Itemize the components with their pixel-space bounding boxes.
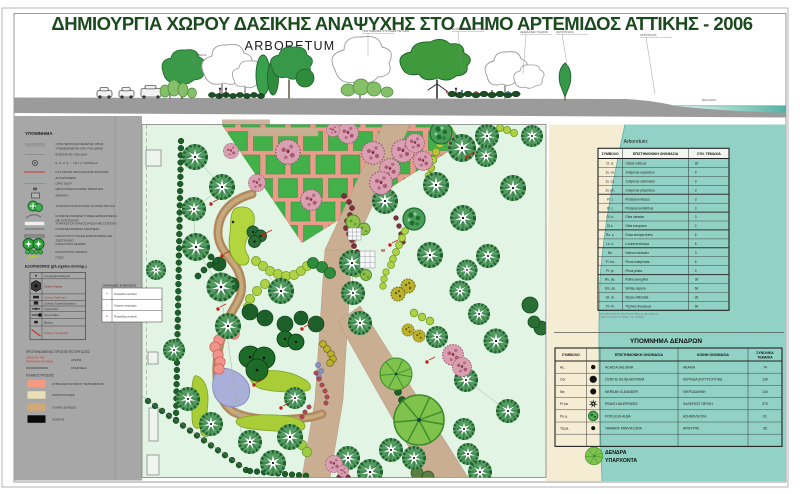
svg-text:Pi. ha.: Pi. ha. <box>606 260 615 264</box>
svg-text:ΣΥΝ. ΤΕΜΑΧΙΑ: ΣΥΝ. ΤΕΜΑΧΙΑ <box>697 152 721 156</box>
svg-text:NERIUM OLEANDER: NERIUM OLEANDER <box>605 390 639 394</box>
svg-text:ΓΚΑΖΟΝ: ΓΚΑΖΟΝ <box>52 417 64 421</box>
svg-text:Lo. e.: Lo. e. <box>606 242 614 246</box>
svg-text:Olea oleaster: Olea oleaster <box>625 215 645 219</box>
svg-text:Βρύση: Βρύση <box>44 320 53 324</box>
svg-text:Χάρτης περιοχής: Χάρτης περιοχής <box>114 303 137 307</box>
svg-text:Ξύλινη περίφραξη: Ξύλινη περίφραξη <box>44 331 68 335</box>
svg-text:375: 375 <box>762 402 768 406</box>
svg-text:30: 30 <box>695 296 699 300</box>
svg-text:ΘΑΜΝΟΙ ΚΑΙ ΚΑΛΛΩΠΙΣΤΙΚΑ: ΘΑΜΝΟΙ ΚΑΙ ΚΑΛΛΩΠΙΣΤΙΚΑ <box>452 27 490 31</box>
svg-text:ΥΠΟΜΝΗΜΑ: ΥΠΟΜΝΗΜΑ <box>25 131 53 136</box>
svg-text:2: 2 <box>695 224 697 228</box>
svg-text:ΣΧΙΣΤΟΠΛΑΚΕΣ: ΣΧΙΣΤΟΠΛΑΚΕΣ <box>52 393 75 397</box>
svg-text:Ru. pe.: Ru. pe. <box>605 278 615 282</box>
svg-text:ΘΑΛΑΣΣΑ: ΘΑΛΑΣΣΑ <box>702 98 716 102</box>
svg-text:ΛΕΥΚΟΨΗΛΑ: ΛΕΥΚΟΨΗΛΑ <box>556 30 574 34</box>
svg-text:Ta.pa.: Ta.pa. <box>560 427 569 431</box>
svg-text:ΦΡΕΑΤΙΑ: ΦΡΕΑΤΙΑ <box>56 194 69 198</box>
svg-text:ΚΡΑΣΠΕΔΑ: ΚΡΑΣΠΕΔΑ <box>71 366 87 370</box>
svg-text:Για τα είδη Juniperus, Olea, P: Για τα είδη Juniperus, Olea, Pistacia, R… <box>599 313 659 316</box>
svg-text:ΣΥΝΟΛΙΚΑ: ΣΥΝΟΛΙΚΑ <box>756 351 774 355</box>
svg-text:61: 61 <box>763 414 767 418</box>
svg-text:6: 6 <box>695 260 697 264</box>
svg-text:ΚΑΤ ΑΡΧΗΝ ΟΡΙΟ ΔΑΣΙΚΗΣ ΕΡΓΑΣΙΑ: ΚΑΤ ΑΡΧΗΝ ΟΡΙΟ ΔΑΣΙΚΗΣ ΕΡΓΑΣΙΑΣ <box>56 170 109 174</box>
svg-text:ΣΥΜΒΟΛΟ: ΣΥΜΒΟΛΟ <box>602 152 619 156</box>
svg-text:Πινακίδα εισόδου: Πινακίδα εισόδου <box>114 292 137 296</box>
svg-text:Thymus theacious: Thymus theacious <box>625 305 651 309</box>
svg-text:Rosa sempervirens: Rosa sempervirens <box>625 233 653 237</box>
svg-text:140: 140 <box>762 390 768 394</box>
svg-text:Τραμπάλα: Τραμπάλα <box>44 307 58 311</box>
svg-text:Ci. cr.: Ci. cr. <box>606 162 614 166</box>
svg-text:Pistacia terebinthus: Pistacia terebinthus <box>625 206 653 210</box>
svg-text:Juniperus communis: Juniperus communis <box>625 180 655 184</box>
svg-text:ΥΠΕΔΕΙΧΘΗΣΑΝ ΑΠΟ ΤΟΝ ΔΗΜΟ: ΥΠΕΔΕΙΧΘΗΣΑΝ ΑΠΟ ΤΟΝ ΔΗΜΟ <box>56 146 104 150</box>
svg-text:Th. th.: Th. th. <box>606 305 615 309</box>
svg-text:ΑΚΡΟΓΙΑΛΙΑ: ΑΚΡΟΓΙΑΛΙΑ <box>640 33 657 37</box>
svg-text:ΥΦΙΣΤΑΜΕΝΕΣ ΣΥΣΤΑΔΕΣ ΠΕΥΚΩΝ: ΥΦΙΣΤΑΜΕΝΕΣ ΣΥΣΤΑΔΕΣ ΠΕΥΚΩΝ <box>362 29 409 33</box>
svg-text:3: 3 <box>695 188 697 192</box>
svg-text:ΠΛΑΚΟΣΤΡΩΣΕΙΣ: ΠΛΑΚΟΣΤΡΩΣΕΙΣ <box>26 374 54 378</box>
svg-text:6: 6 <box>695 233 697 237</box>
svg-text:Juniperus oxycedrus: Juniperus oxycedrus <box>625 171 655 175</box>
svg-text:ο αριθ. των φυτών ανά τεμάχιο: ο αριθ. των φυτών ανά τεμάχιο - κατ' εκτ… <box>599 316 644 319</box>
svg-text:136: 136 <box>762 378 768 382</box>
svg-text:ΚΟΙΝΗ ΟΝΟΜΑΣΙΑ: ΚΟΙΝΗ ΟΝΟΜΑΣΙΑ <box>697 353 729 357</box>
svg-text:3: 3 <box>695 206 697 210</box>
svg-text:60: 60 <box>695 305 699 309</box>
svg-text:ΕΞΟΠΛΙΣΜΟΣ (βλ.σχέδιο Λεπτομ.): ΕΞΟΠΛΙΣΜΟΣ (βλ.σχέδιο Λεπτομ.) <box>25 265 87 269</box>
svg-text:Ac.: Ac. <box>560 366 565 370</box>
svg-text:ΧΑΛΕΠΙΟΣ ΠΕΥΚΗ: ΧΑΛΕΠΙΟΣ ΠΕΥΚΗ <box>683 402 713 406</box>
svg-text:··: ·· <box>106 302 109 307</box>
svg-text:ΥΠΑΡΧΟΥΣΑ ΒΛΑΣΤΗΣΗ (ΚΥΡΙΩΣ ΠΕΥ: ΥΠΑΡΧΟΥΣΑ ΒΛΑΣΤΗΣΗ (ΚΥΡΙΩΣ ΠΕΥΚΑ) <box>56 204 116 208</box>
svg-text:1,5 ΠΕΖΟΔ.: 1,5 ΠΕΖΟΔ. <box>193 53 207 57</box>
svg-text:ΠΙΚΡΟΔΑΦΝΗ: ΠΙΚΡΟΔΑΦΝΗ <box>683 390 706 394</box>
svg-text:TAMARIX PARVIFLORA: TAMARIX PARVIFLORA <box>605 427 643 431</box>
svg-text:ΚΑΙΝΟΥΡΓΙΑ ΔΕΝΔΡΑ: ΚΑΙΝΟΥΡΓΙΑ ΔΕΝΔΡΑ <box>56 242 86 246</box>
svg-text:Styrax officinalis: Styrax officinalis <box>625 296 648 300</box>
svg-text:ΚΥΒΟΛΙΘΟΙ ΦΥΣΙΚΟΥ ΠΕΤΡΩΜΑΤΟΣ: ΚΥΒΟΛΙΘΟΙ ΦΥΣΙΚΟΥ ΠΕΤΡΩΜΑΤΟΣ <box>52 382 104 386</box>
svg-text:ΠΕΡΓΚΟΛΑ ΑΤΟΜΩΝ: ΠΕΡΓΚΟΛΑ ΑΤΟΜΩΝ <box>26 360 53 364</box>
svg-text:ΥΠΑΡΧΟΥΣΑ ΠΛΑΚΟΣΤΡΩΣΗ ΜΕ ΣΧΙΣΤ: ΥΠΑΡΧΟΥΣΑ ΠΛΑΚΟΣΤΡΩΣΗ ΜΕ ΣΧΙΣΤ/ΘΟ <box>56 222 118 226</box>
svg-text:32: 32 <box>695 162 699 166</box>
svg-text:Ol.e.: Ol.e. <box>607 224 614 228</box>
svg-text:Ne.: Ne. <box>608 251 613 255</box>
svg-text:ΠΡΟΤΕΙΝΟΜΕΝΕΣ ΠΡΟΣΘΕΤΕΣ ΕΡΓΑΣΙ: ΠΡΟΤΕΙΝΟΜΕΝΕΣ ΠΡΟΣΘΕΤΕΣ ΕΡΓΑΣΙΕΣ <box>26 350 90 354</box>
svg-text:Rubia peregrina: Rubia peregrina <box>625 278 648 282</box>
svg-text:Cer.: Cer. <box>560 378 566 382</box>
svg-text:Nerium oleander: Nerium oleander <box>625 251 650 255</box>
svg-text:ΞΥΛΙΝΟ ΔΑΠΕΔΟ: ΞΥΛΙΝΟ ΔΑΠΕΔΟ <box>52 405 77 409</box>
svg-text:Cistus creticus: Cistus creticus <box>625 162 646 166</box>
svg-text:Pi. pi.: Pi. pi. <box>606 269 614 273</box>
svg-text:ΑΕΙΘΑΛΛΕΣ ΓΚΑΖΟΝ: ΑΕΙΘΑΛΛΕΣ ΓΚΑΖΟΝ <box>520 30 548 34</box>
svg-text:Ξύλινο Καθιστικό: Ξύλινο Καθιστικό <box>44 295 67 299</box>
svg-text:ΠΙΝΑΚΙΔΕΣ ΣΗΜΑΝΣΗΣ: ΠΙΝΑΚΙΔΕΣ ΣΗΜΑΝΣΗΣ <box>103 284 136 288</box>
svg-text:3: 3 <box>695 269 697 273</box>
svg-text:Τσουλήθρα: Τσουλήθρα <box>44 313 59 317</box>
svg-text:Pi. t.: Pi. t. <box>607 206 613 210</box>
svg-text:35: 35 <box>763 427 767 431</box>
svg-text:30: 30 <box>695 278 699 282</box>
svg-text:ACACIA SALIGNA: ACACIA SALIGNA <box>605 366 634 370</box>
svg-text:Ju. ph.: Ju. ph. <box>605 188 615 192</box>
svg-text:ΑΣΗΜΟΛΕΥΚΑ: ΑΣΗΜΟΛΕΥΚΑ <box>683 414 707 418</box>
svg-text:ΑΚΑΚΙΑ: ΑΚΑΚΙΑ <box>683 366 696 370</box>
svg-text:Ε. Ο. 2, 3, ... 16,1 ) = 26.60: Ε. Ο. 2, 3, ... 16,1 ) = 26.600 μ2 <box>56 161 99 165</box>
svg-text:Sm. as.: Sm. as. <box>605 287 616 291</box>
svg-text:Pi.ha.: Pi.ha. <box>560 402 569 406</box>
svg-text:ΣΥΜΒΟΛΟ: ΣΥΜΒΟΛΟ <box>562 353 580 357</box>
svg-text:60: 60 <box>695 287 699 291</box>
svg-text:Ξύλινες Τραπεζοπάγκοι: Ξύλινες Τραπεζοπάγκοι <box>44 301 76 305</box>
svg-text:ΚΑΤΑΣΚΕΥΑΣΜΕΝΑ ΚΡΑΣΠΕΔΑ: ΚΑΤΑΣΚΕΥΑΣΜΕΝΑ ΚΡΑΣΠΕΔΑ <box>56 227 100 231</box>
svg-text:Απορριμματοδοχείο: Απορριμματοδοχείο <box>44 274 71 278</box>
svg-text:Pistacia lentiscus: Pistacia lentiscus <box>625 197 650 201</box>
svg-text:ΜΕΤΑΛΛΙΚΕΣ ΣΧΑΡΕΣ ΦΡΕΑΤΙΩΝ: ΜΕΤΑΛΛΙΚΕΣ ΣΧΑΡΕΣ ΦΡΕΑΤΙΩΝ <box>56 187 103 191</box>
svg-text:9: 9 <box>695 171 697 175</box>
svg-text:3: 3 <box>695 180 697 184</box>
svg-text:3: 3 <box>695 215 697 219</box>
svg-text:3: 3 <box>695 251 697 255</box>
svg-text:St. of.: St. of. <box>606 296 614 300</box>
svg-text:Pinus pinea: Pinus pinea <box>625 269 642 273</box>
svg-text:ΕΠΙΣΤΗΜΟΝΙΚΗ ΟΝΟΜΑΣΙΑ: ΕΠΙΣΤΗΜΟΝΙΚΗ ΟΝΟΜΑΣΙΑ <box>633 152 679 156</box>
svg-text:Po.a.: Po.a. <box>560 414 568 418</box>
svg-text:ΚΑΙΝΟΥΡΓΙΟΙ ΘΑΜΝΟΙ: ΚΑΙΝΟΥΡΓΙΟΙ ΘΑΜΝΟΙ <box>56 250 88 254</box>
svg-text:3: 3 <box>695 197 697 201</box>
svg-text:ΕΠΕΞΗΓΗΣΗ ΤΩΝ ΔΑΑ: ΕΠΕΞΗΓΗΣΗ ΤΩΝ ΔΑΑ <box>56 153 88 157</box>
svg-text:ΥΠΟΜΝΗΜΑ ΔΕΝΔΡΩΝ: ΥΠΟΜΝΗΜΑ ΔΕΝΔΡΩΝ <box>630 338 702 345</box>
svg-text:CERCIS SILIQUASTRUM: CERCIS SILIQUASTRUM <box>605 378 644 382</box>
svg-text:ΑΡΜΥΡΙΚΙ: ΑΡΜΥΡΙΚΙ <box>683 427 699 431</box>
svg-text:Arboretum:: Arboretum: <box>624 139 649 145</box>
svg-text:PINUS HALEPENSIS: PINUS HALEPENSIS <box>605 402 638 406</box>
svg-text:Ju. ox.: Ju. ox. <box>606 171 616 175</box>
svg-text:Pi. l.: Pi. l. <box>607 197 613 201</box>
svg-text:Ne.: Ne. <box>560 390 565 394</box>
svg-text:ΥΠΑΡΧΟΝΤΑ: ΥΠΑΡΧΟΝΤΑ <box>605 458 637 464</box>
svg-text:Olea europaea: Olea europaea <box>625 224 646 228</box>
svg-text:6: 6 <box>695 242 697 246</box>
svg-text:ΟΡΙΟ ΟΔΟΥ: ΟΡΙΟ ΟΔΟΥ <box>56 182 73 186</box>
svg-text:Smilax aspera: Smilax aspera <box>625 287 645 291</box>
svg-text:ΑΤΕΡΜ.: ΑΤΕΡΜ. <box>71 358 82 362</box>
svg-text:Ro. s.: Ro. s. <box>606 233 614 237</box>
svg-text:74: 74 <box>763 366 767 370</box>
svg-text:Ju. co.: Ju. co. <box>606 180 616 184</box>
svg-text:Πινακίδες κατευθ.: Πινακίδες κατευθ. <box>114 315 138 319</box>
svg-text:Ol. e.: Ol. e. <box>606 215 614 219</box>
svg-text:ΕΠΙΣΤΗΜΟΝΙΚΗ ΟΝΟΜΑΣΙΑ: ΕΠΙΣΤΗΜΟΝΙΚΗ ΟΝΟΜΑΣΙΑ <box>615 353 663 357</box>
svg-text:POPULUS ALBA: POPULUS ALBA <box>605 414 631 418</box>
svg-text:ΤΕΜΑΧΙΑ: ΤΕΜΑΧΙΑ <box>757 356 773 360</box>
svg-text:Ξύλινο Κιόσκι: Ξύλινο Κιόσκι <box>44 285 62 289</box>
svg-text:ΚΕΡΚΙΔΑ (ΚΟΥΤΣΟΥΠΙΑ): ΚΕΡΚΙΔΑ (ΚΟΥΤΣΟΥΠΙΑ) <box>683 378 722 382</box>
svg-text:Lonicera etrusca: Lonicera etrusca <box>625 242 649 246</box>
svg-text:ΠΟΕΣ: ΠΟΕΣ <box>56 256 65 260</box>
svg-text:ΔΕΝΔΡΑ: ΔΕΝΔΡΑ <box>605 450 627 456</box>
svg-text:Juniperus phoenicea: Juniperus phoenicea <box>625 188 655 192</box>
svg-text:Pinus halepensis: Pinus halepensis <box>625 260 650 264</box>
svg-text:ΑΚΤΟΓΡΑΜΜΗ: ΑΚΤΟΓΡΑΜΜΗ <box>56 176 77 180</box>
